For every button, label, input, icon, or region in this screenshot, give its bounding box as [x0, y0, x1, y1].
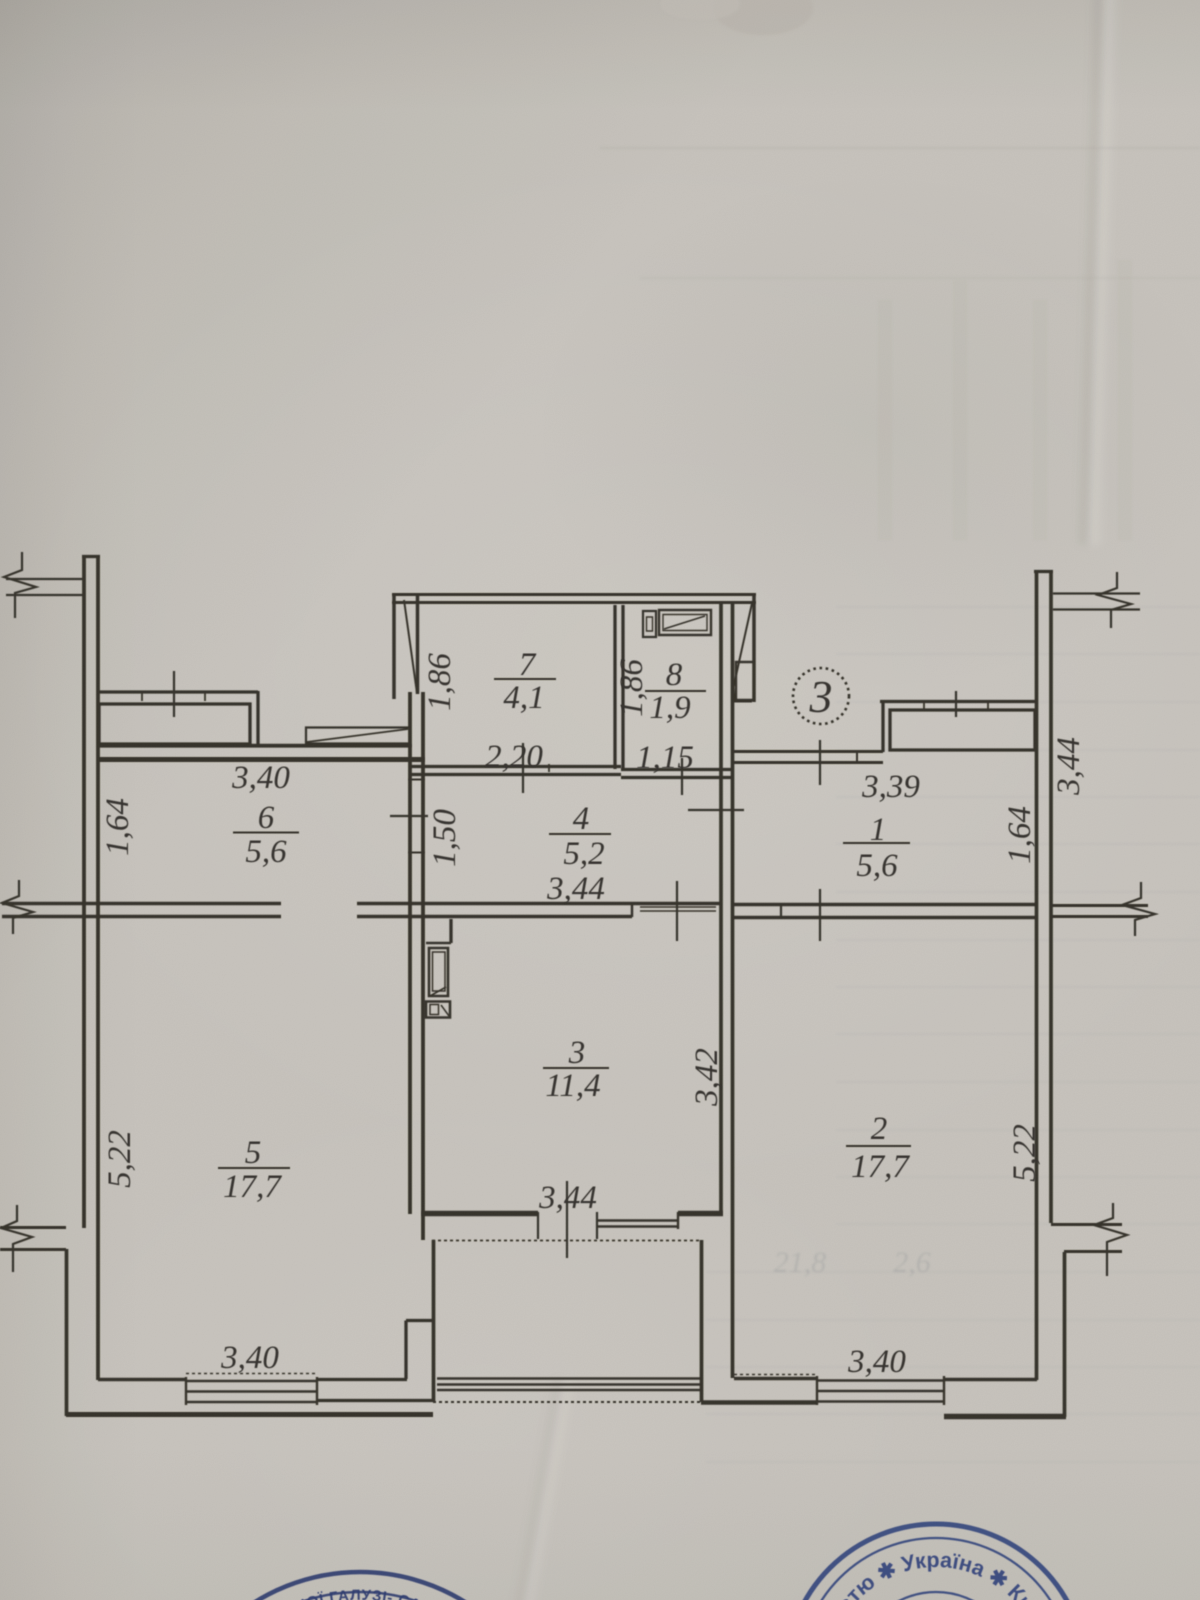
svg-text:1,9: 1,9: [649, 690, 690, 726]
svg-text:21,8: 21,8: [774, 1246, 827, 1279]
svg-text:1,64: 1,64: [100, 798, 136, 856]
svg-text:3,39: 3,39: [861, 769, 920, 805]
svg-text:3,44: 3,44: [546, 871, 605, 907]
svg-text:5,6: 5,6: [856, 848, 898, 884]
svg-text:8: 8: [666, 657, 683, 693]
svg-text:6: 6: [258, 800, 275, 836]
svg-text:3: 3: [809, 671, 833, 722]
svg-text:5,2: 5,2: [563, 836, 604, 872]
svg-text:17,7: 17,7: [851, 1149, 910, 1185]
svg-text:3,42: 3,42: [689, 1048, 725, 1107]
svg-text:1,86: 1,86: [422, 653, 458, 711]
svg-text:11,4: 11,4: [545, 1068, 600, 1104]
svg-text:7: 7: [519, 647, 537, 683]
svg-text:1,64: 1,64: [1002, 806, 1038, 864]
svg-text:1: 1: [870, 812, 887, 848]
svg-text:3,40: 3,40: [220, 1340, 279, 1376]
svg-text:4,1: 4,1: [503, 680, 544, 716]
svg-text:3,40: 3,40: [231, 760, 290, 796]
svg-text:17,7: 17,7: [223, 1169, 282, 1205]
svg-text:ністю ✱ Україна ✱ Київ: ністю ✱ Україна ✱ Київ: [821, 1548, 1050, 1600]
svg-text:2: 2: [871, 1111, 888, 1147]
svg-text:4: 4: [573, 801, 590, 837]
svg-text:2,6: 2,6: [893, 1246, 931, 1279]
svg-text:3,40: 3,40: [847, 1344, 906, 1380]
svg-text:2,20: 2,20: [485, 739, 543, 775]
svg-text:5,22: 5,22: [1007, 1124, 1043, 1182]
svg-text:1,50: 1,50: [427, 809, 463, 867]
svg-text:1,15: 1,15: [636, 740, 694, 776]
svg-text:3: 3: [568, 1035, 586, 1071]
svg-text:5,6: 5,6: [245, 834, 287, 870]
svg-text:3,44: 3,44: [538, 1180, 597, 1216]
svg-text:5: 5: [245, 1135, 262, 1171]
svg-text:НОЇ ГАЛУЗІ- САНТЕХ: НОЇ ГАЛУЗІ- САНТЕХ: [293, 1587, 465, 1600]
svg-text:3,44: 3,44: [1051, 737, 1087, 796]
svg-text:1,86: 1,86: [614, 659, 650, 717]
svg-text:5,22: 5,22: [102, 1130, 138, 1188]
